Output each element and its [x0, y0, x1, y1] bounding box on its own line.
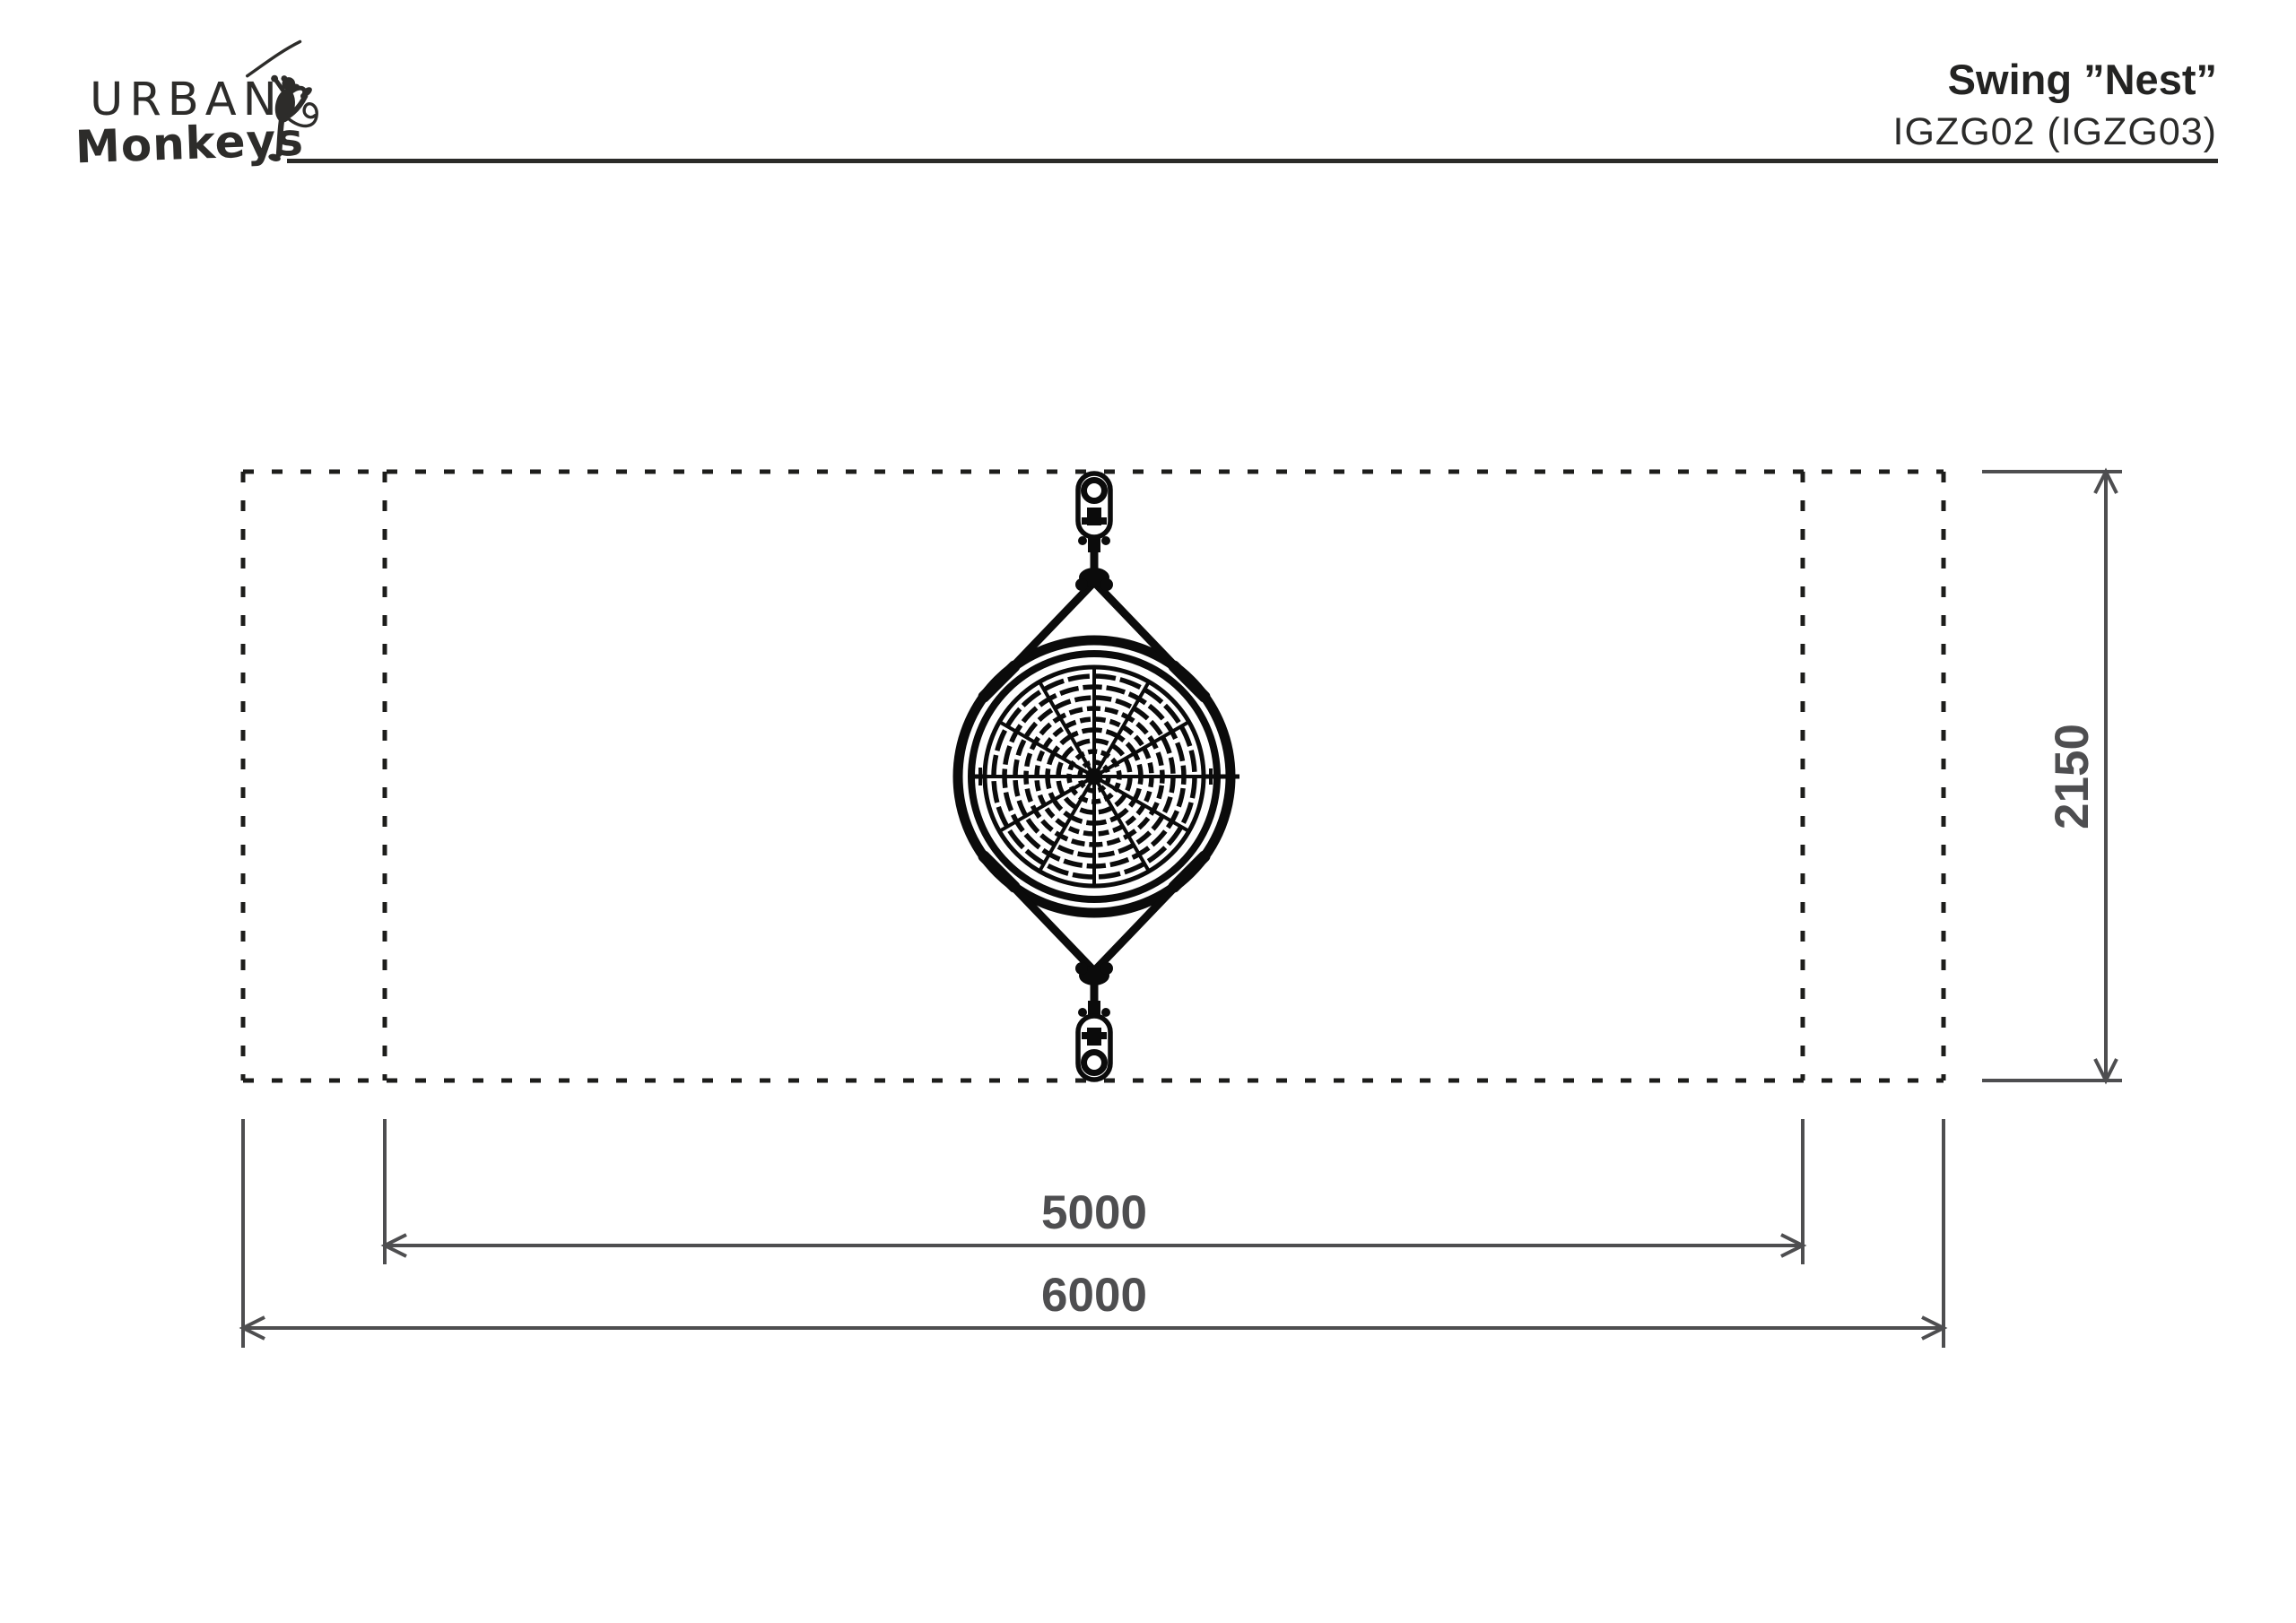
top-shackle — [1078, 473, 1110, 537]
dimension-5000: 5000 — [385, 1186, 1803, 1256]
technical-drawing: 5000 6000 2150 — [0, 0, 2296, 1623]
bottom-shackle — [1078, 1016, 1110, 1080]
dimension-label-5000: 5000 — [1041, 1186, 1147, 1239]
dimension-annotations: 5000 6000 2150 — [243, 472, 2122, 1348]
spec-sheet-page: URBAN Monkeys Swing ”Nest” IGZG02 (IGZG0… — [0, 0, 2296, 1623]
nest-swing-drawing — [958, 473, 1239, 1080]
dimension-label-6000: 6000 — [1041, 1269, 1147, 1322]
dimension-2150: 2150 — [2046, 472, 2117, 1081]
dimension-6000: 6000 — [243, 1269, 1944, 1339]
dimension-label-2150: 2150 — [2046, 724, 2099, 829]
